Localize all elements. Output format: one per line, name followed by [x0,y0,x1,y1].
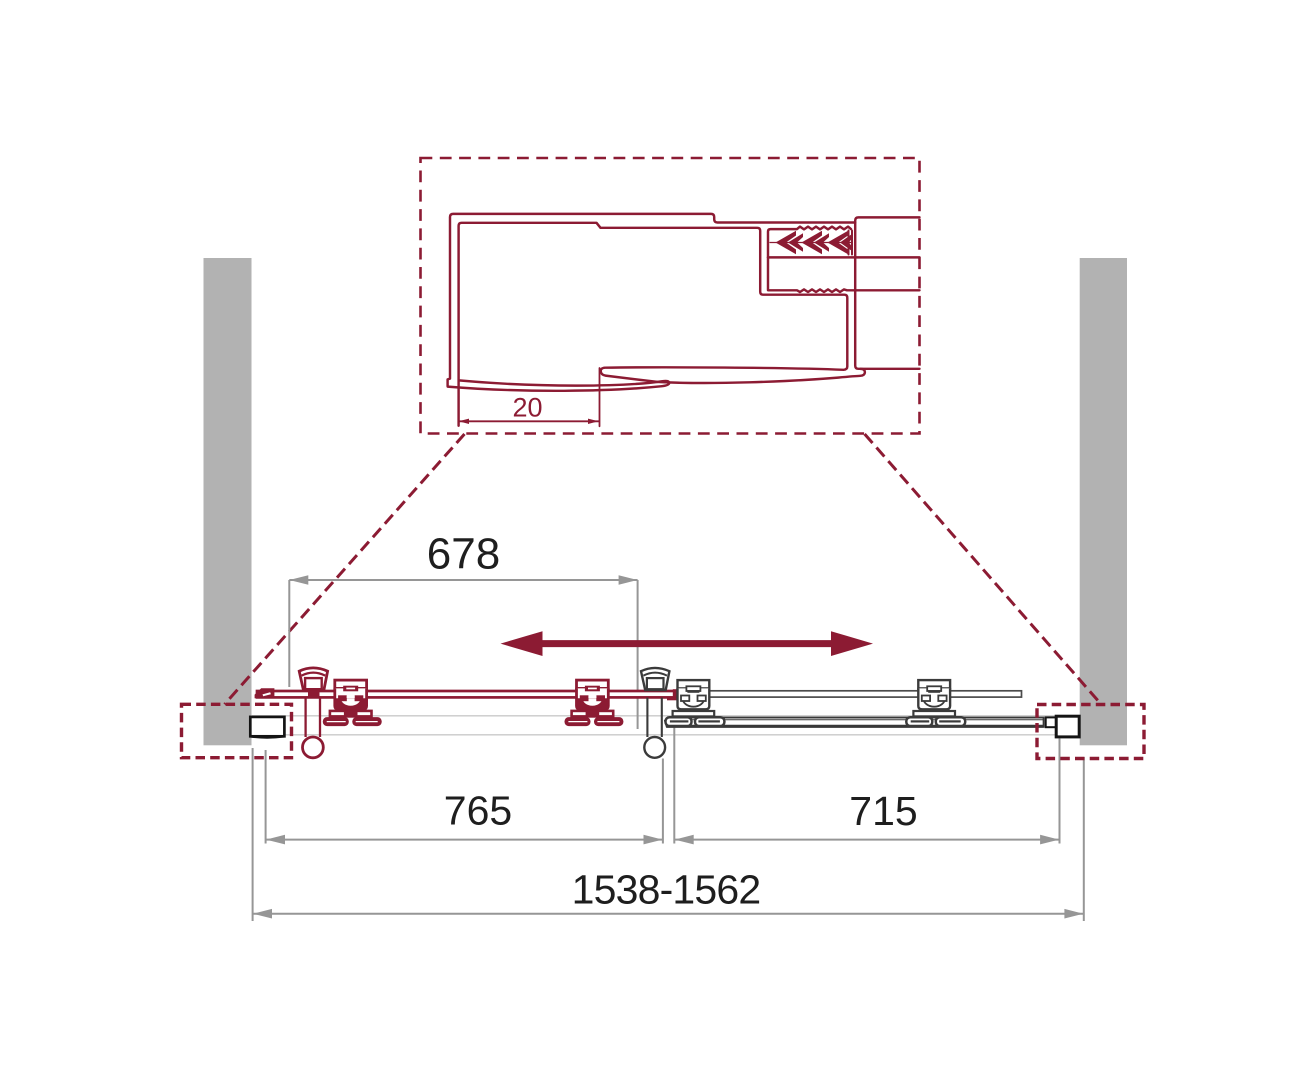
svg-text:678: 678 [427,530,500,579]
svg-text:1538-1562: 1538-1562 [572,867,761,913]
svg-text:765: 765 [444,788,512,834]
svg-text:20: 20 [512,393,542,423]
svg-text:715: 715 [849,788,917,834]
